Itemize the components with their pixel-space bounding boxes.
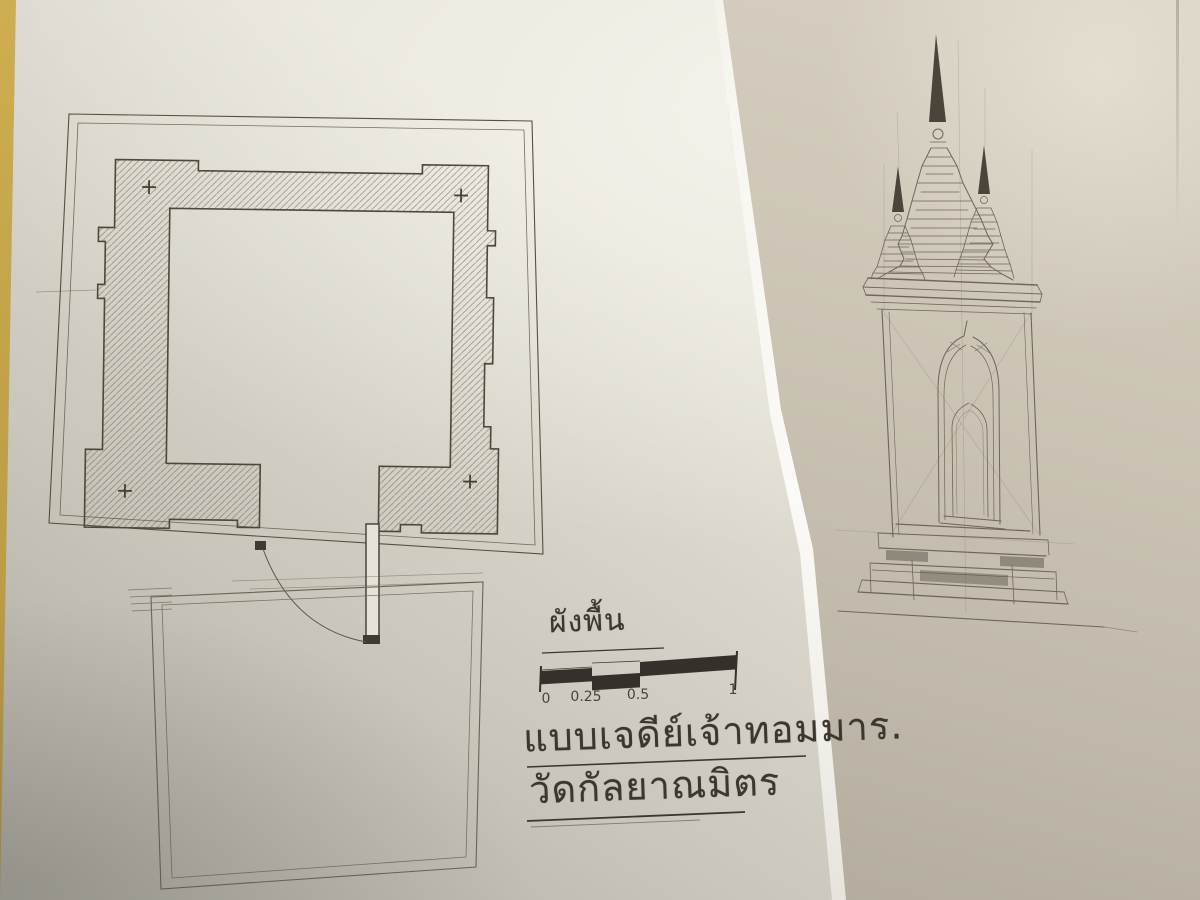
scale-bar: 0 0.25 0.5 1 [540, 651, 737, 707]
scale-label-0: 0 [542, 691, 551, 707]
corner-mark-top-right: + [452, 183, 471, 208]
corner-mark-bottom-right: + [461, 469, 480, 494]
door-swing-arc [263, 549, 366, 642]
cornice [863, 278, 1042, 314]
corner-mark-bottom-left: + [115, 479, 134, 504]
arched-niche [938, 321, 1005, 529]
floor-plan-drawing: + + + + [36, 114, 543, 889]
plan-porch-outline [128, 582, 483, 889]
scale-label-025: 0.25 [570, 689, 601, 705]
elevation-drawing [836, 34, 1137, 632]
base-mouldings [858, 524, 1068, 604]
ground-line [838, 611, 1137, 632]
plan-corner-marks: + + + + [115, 175, 483, 509]
photo-of-architectural-drawings: + + + + [0, 0, 1200, 900]
plan-wall-ring [84, 159, 502, 534]
caption-line-2: วัดกัลยาณมิตร [528, 763, 780, 810]
corner-mark-top-left: + [140, 175, 159, 200]
plan-door [255, 524, 380, 644]
plan-title-label: ผังพื้น [548, 606, 626, 639]
scale-label-05: 0.5 [627, 687, 649, 703]
scale-label-1: 1 [729, 682, 738, 698]
